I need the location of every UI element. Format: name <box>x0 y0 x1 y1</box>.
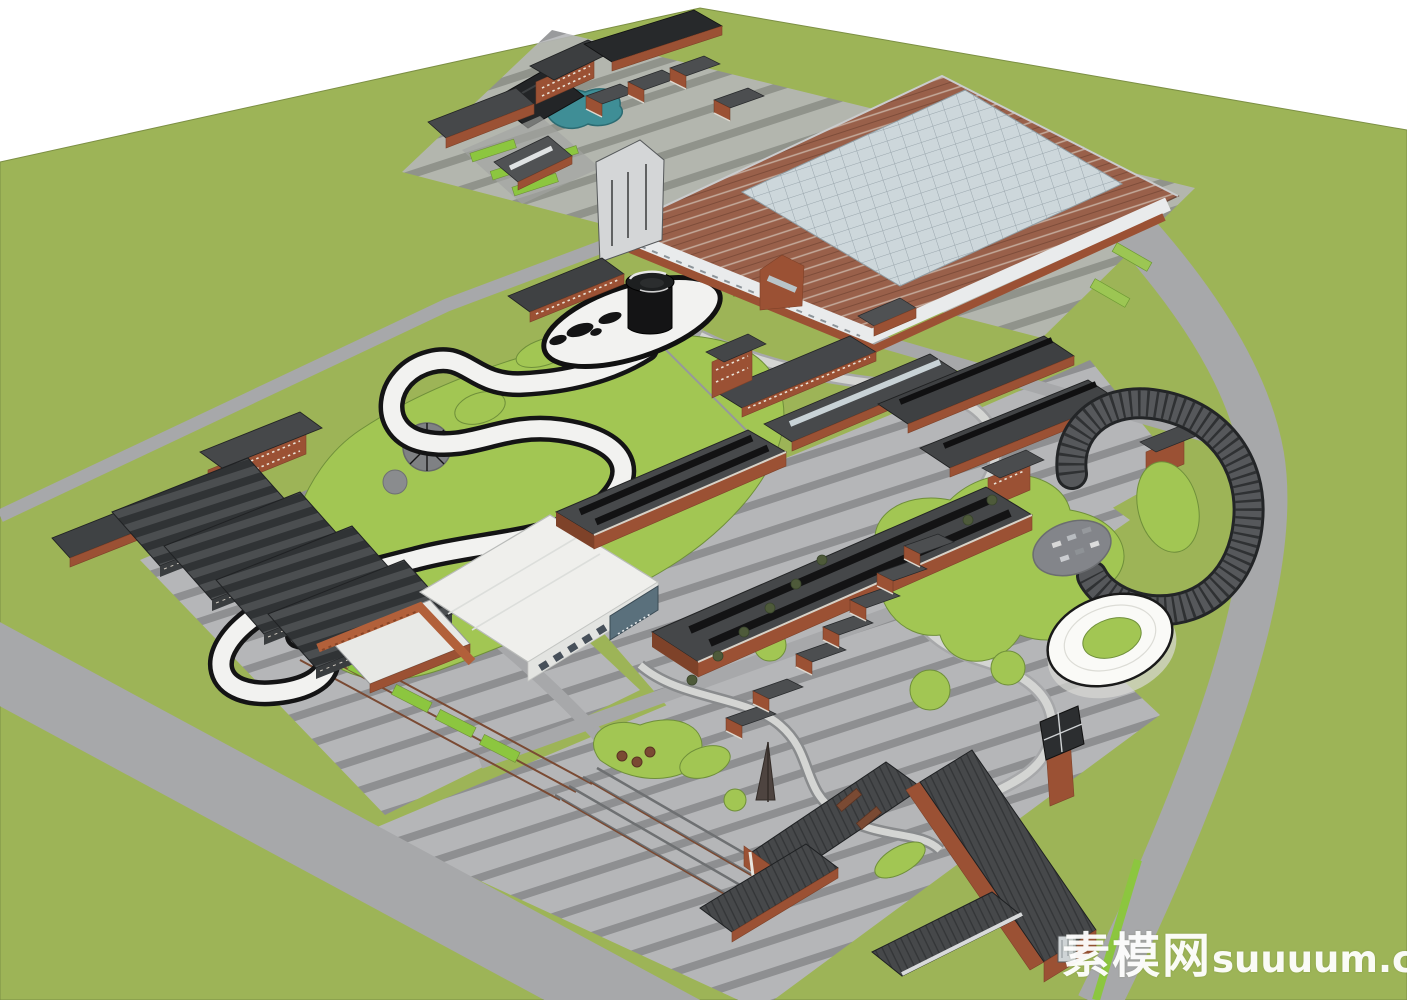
site-plan-rendering: 素模网suuuum.com <box>0 0 1407 1000</box>
scene-canvas <box>0 0 1407 1000</box>
small-plaza <box>383 470 407 494</box>
watermark-en: suuuum.com <box>1212 938 1407 981</box>
watermark-cn: 素模网 <box>1062 928 1212 984</box>
watermark: 素模网suuuum.com <box>1062 916 1407 986</box>
black-spiral-tower <box>626 272 674 334</box>
